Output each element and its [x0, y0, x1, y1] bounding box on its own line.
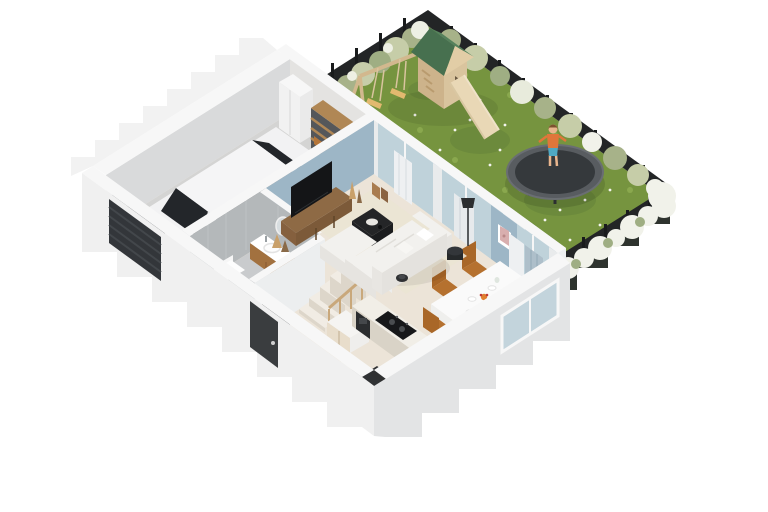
- pier: [433, 163, 442, 223]
- jug: [495, 277, 500, 283]
- child-shirt: [547, 134, 559, 148]
- isometric-scene: [0, 0, 768, 512]
- floorplan-render: [0, 0, 768, 512]
- side-pouf: [447, 247, 463, 261]
- child-shorts: [548, 147, 558, 156]
- plate: [488, 286, 496, 291]
- plate: [468, 297, 476, 302]
